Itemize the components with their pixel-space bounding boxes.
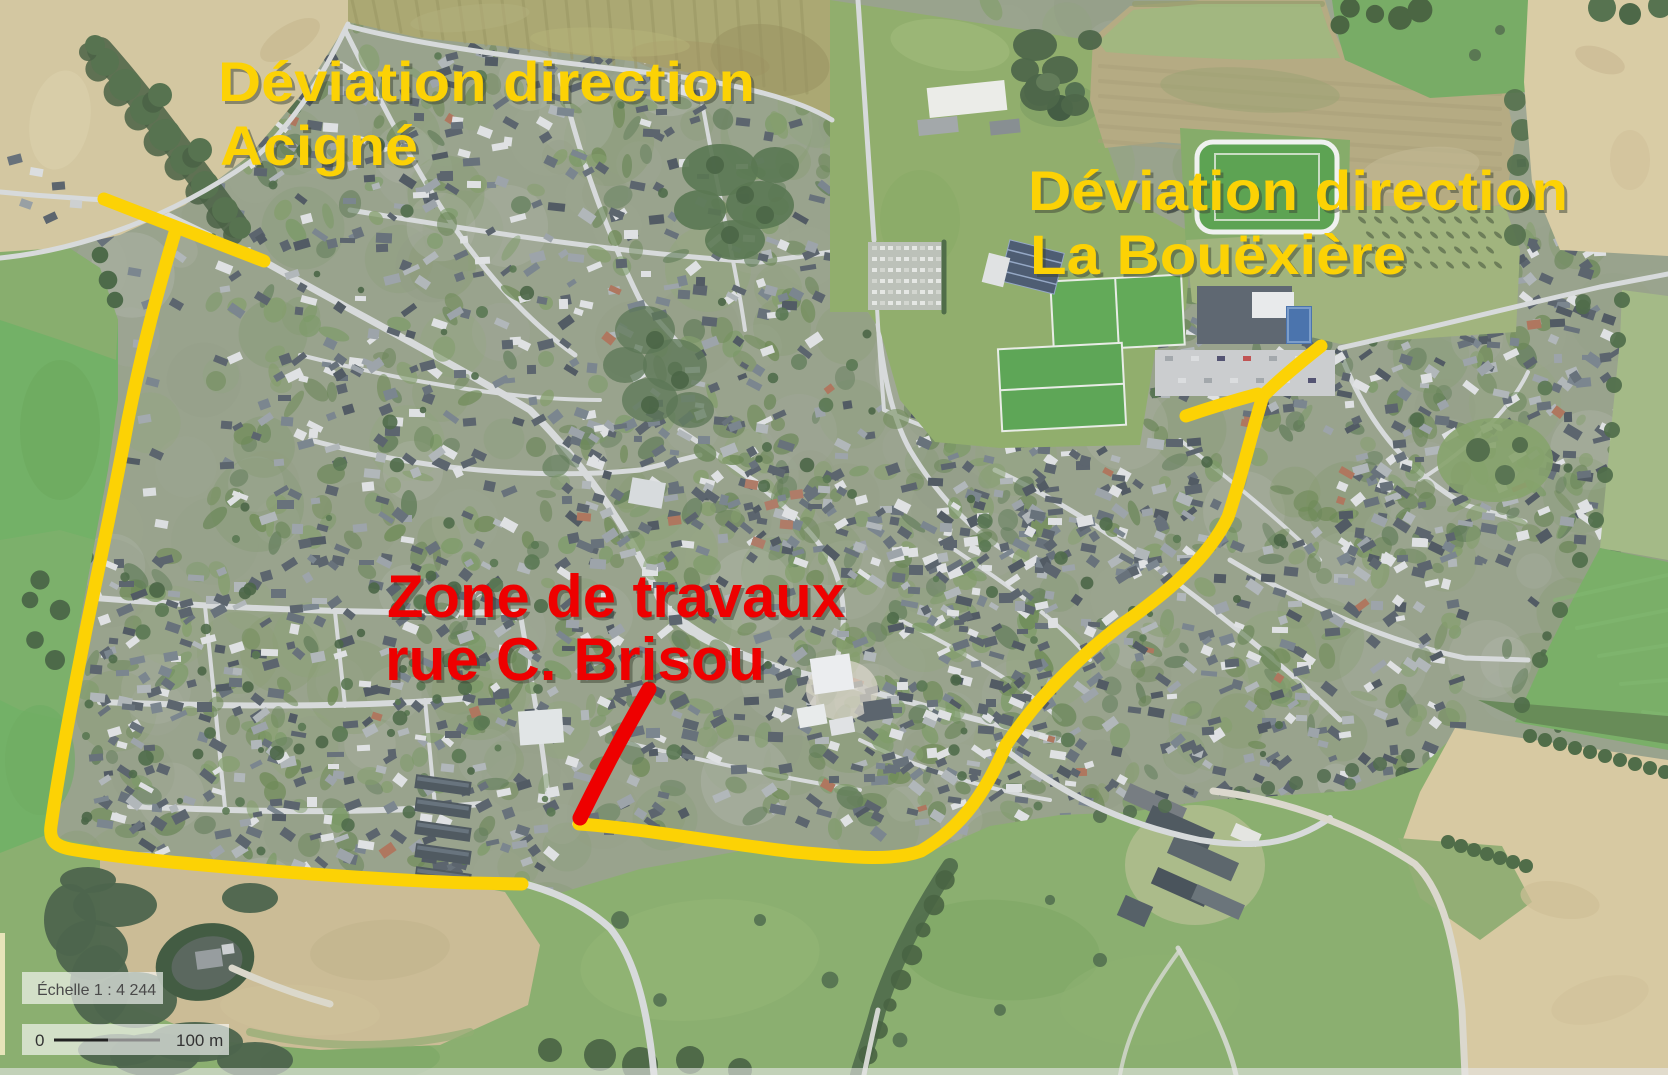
svg-text:rue C. Brisou: rue C. Brisou xyxy=(385,626,765,693)
svg-text:Échelle 1 : 4 244: Échelle 1 : 4 244 xyxy=(37,980,156,999)
svg-text:0: 0 xyxy=(35,1031,44,1050)
svg-text:100 m: 100 m xyxy=(176,1031,223,1050)
svg-text:Déviation direction: Déviation direction xyxy=(218,50,755,113)
svg-text:La Bouëxière: La Bouëxière xyxy=(1030,223,1406,286)
svg-text:Zone de travaux: Zone de travaux xyxy=(387,563,845,630)
svg-text:Déviation direction: Déviation direction xyxy=(1028,159,1568,222)
svg-text:Acigné: Acigné xyxy=(220,114,418,177)
